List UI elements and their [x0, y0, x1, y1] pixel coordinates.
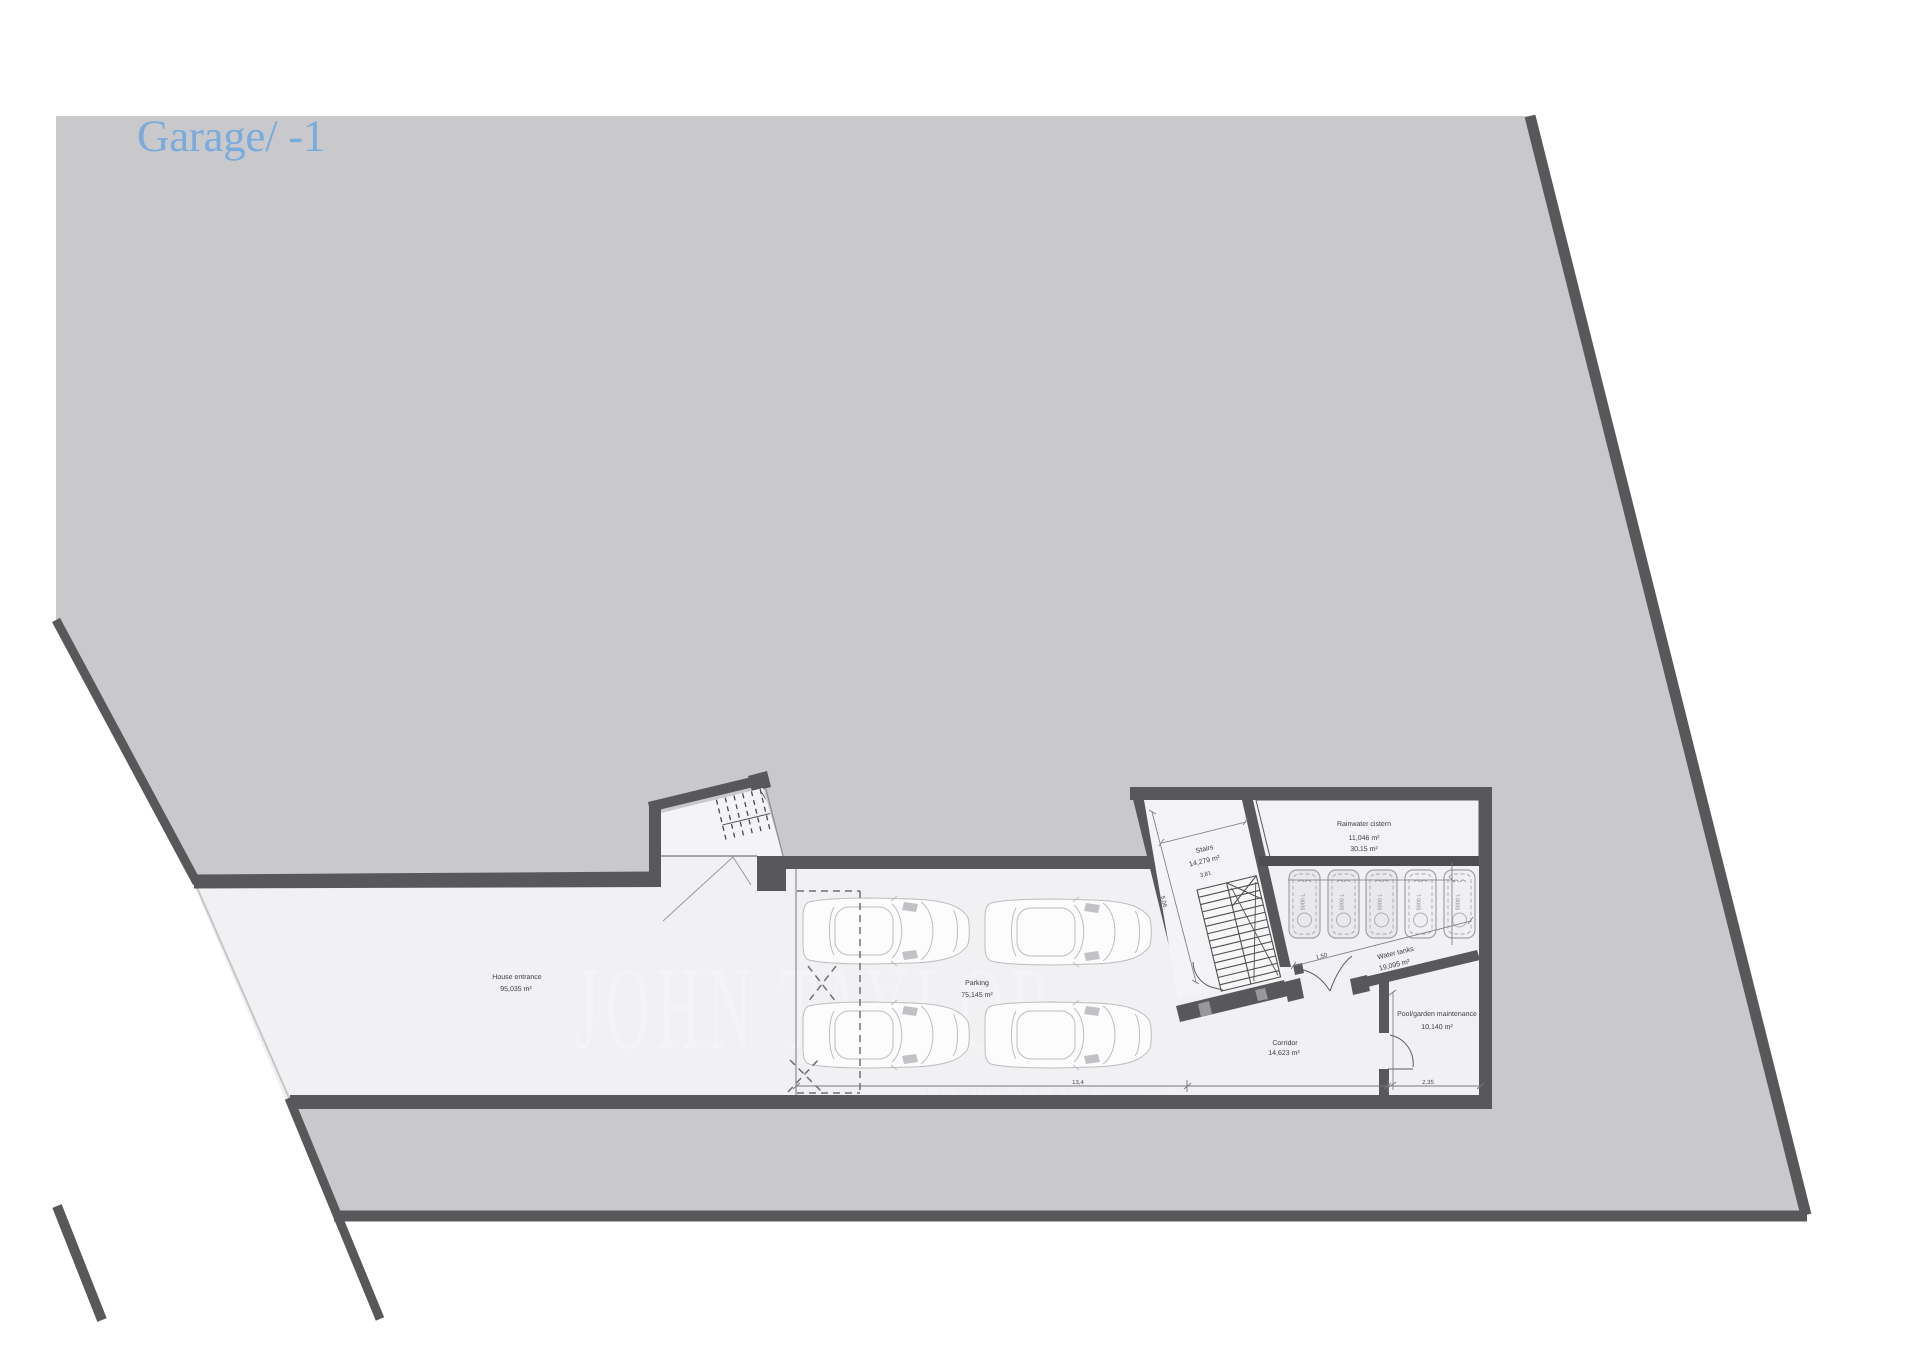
svg-text:75,145 m²: 75,145 m² [961, 992, 993, 999]
svg-text:11,046 m²: 11,046 m² [1349, 835, 1381, 842]
svg-text:14,623 m²: 14,623 m² [1268, 1050, 1300, 1057]
svg-text:10,140 m²: 10,140 m² [1421, 1024, 1453, 1031]
svg-text:13,4: 13,4 [1072, 1079, 1084, 1086]
svg-text:Corridor: Corridor [1272, 1039, 1298, 1047]
svg-text:Garage/ -1: Garage/ -1 [137, 111, 325, 161]
svg-text:Pool/garden maintenance: Pool/garden maintenance [1397, 1010, 1477, 1018]
svg-text:House entrance: House entrance [492, 974, 542, 981]
svg-text:2,35: 2,35 [1422, 1079, 1434, 1086]
svg-text:30,15 m²: 30,15 m² [1350, 846, 1378, 853]
svg-text:Parking: Parking [965, 979, 989, 987]
svg-text:95,035 m²: 95,035 m² [500, 986, 532, 993]
svg-text:Rainwater cistern: Rainwater cistern [1337, 820, 1391, 828]
